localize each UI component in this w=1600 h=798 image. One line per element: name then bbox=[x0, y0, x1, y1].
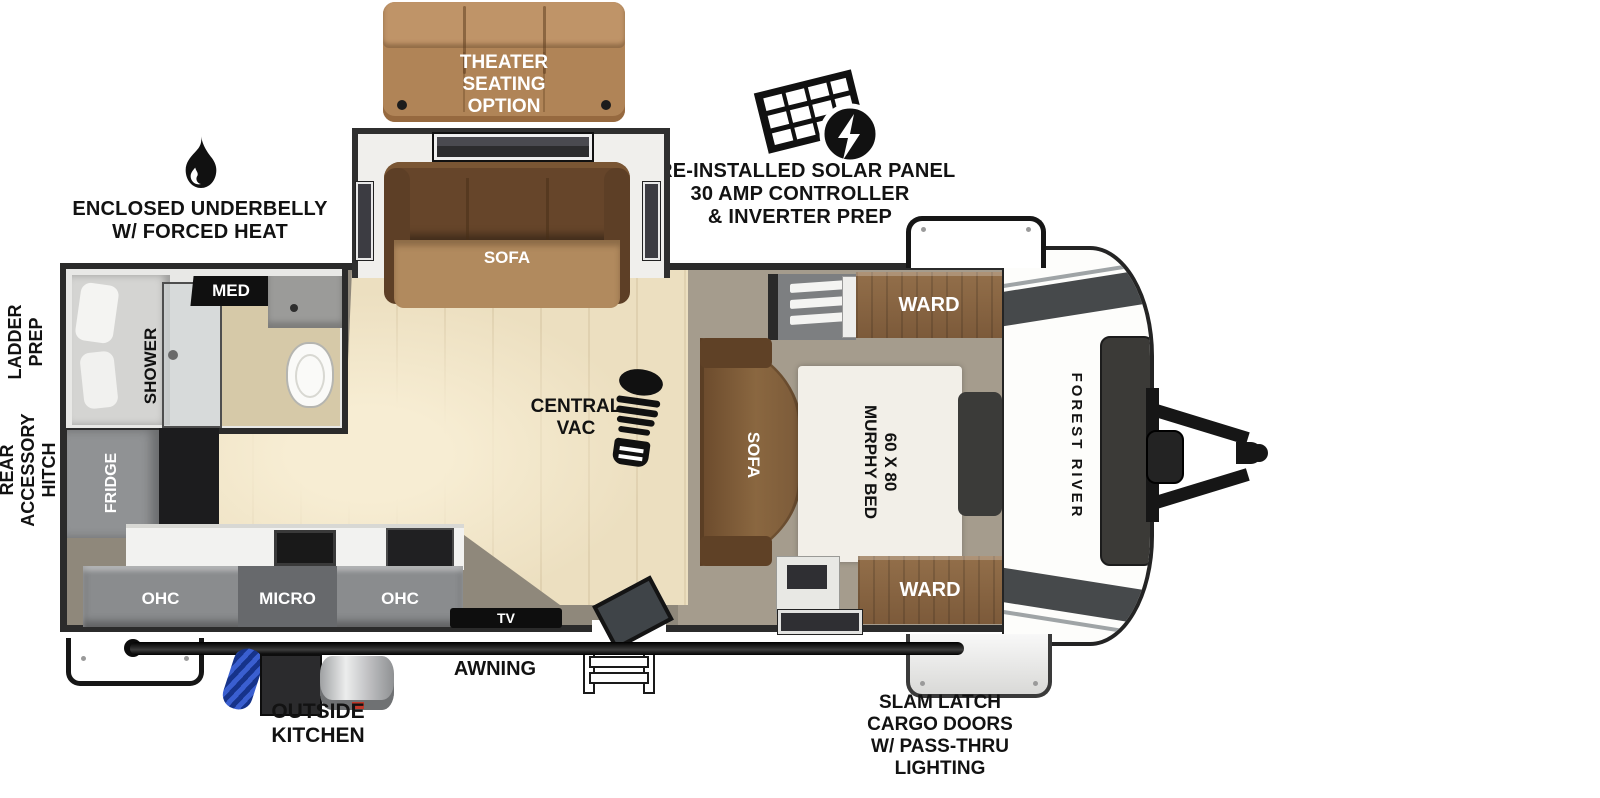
entry-step bbox=[583, 652, 655, 690]
hitch-ball bbox=[1250, 444, 1268, 462]
sofa-arm bbox=[700, 536, 772, 566]
dresser-slat bbox=[790, 296, 848, 309]
step-rung bbox=[589, 672, 649, 684]
screw bbox=[81, 656, 86, 661]
tv-label: TV bbox=[450, 610, 562, 626]
bedroom-window bbox=[778, 610, 862, 634]
solar-panel-icon bbox=[742, 62, 892, 166]
sofa-backrest bbox=[384, 162, 630, 242]
rear-accessory-hitch-label: REAR ACCESSORY HITCH bbox=[0, 394, 63, 546]
dresser-slat bbox=[790, 312, 848, 325]
front-cap: FOREST RIVER bbox=[1002, 246, 1154, 646]
flame-icon bbox=[178, 134, 224, 196]
ward-bottom-label: WARD bbox=[858, 579, 1002, 602]
kitchen-sink bbox=[386, 528, 454, 570]
screw bbox=[920, 681, 925, 686]
outside-kitchen-label: OUTSIDE KITCHEN bbox=[238, 700, 398, 749]
theater-seating-couch: THEATER SEATING OPTION bbox=[383, 2, 625, 122]
cooktop bbox=[274, 530, 336, 566]
theater-seating-label: THEATER SEATING OPTION bbox=[383, 52, 625, 118]
slide-sofa-label: SOFA bbox=[384, 248, 630, 268]
screw bbox=[184, 656, 189, 661]
slideout-window bbox=[432, 132, 594, 162]
toilet bbox=[286, 342, 334, 408]
brand-label: FOREST RIVER bbox=[1067, 326, 1085, 566]
shower-door-knob bbox=[168, 350, 178, 360]
step-rung bbox=[589, 656, 649, 668]
floorplan-canvas: THEATER SEATING OPTION PRE-INSTALLED SOL… bbox=[0, 0, 1600, 798]
micro-label: MICRO bbox=[238, 589, 337, 609]
shower-label: SHOWER bbox=[141, 306, 163, 426]
med-cabinet-label: MED bbox=[192, 281, 270, 301]
underbelly-callout-label: ENCLOSED UNDERBELLY W/ FORCED HEAT bbox=[40, 198, 360, 244]
ladder-prep-label: LADDER PREP bbox=[5, 284, 49, 400]
dresser-slat bbox=[790, 280, 848, 293]
awning-label: AWNING bbox=[430, 658, 560, 681]
screw bbox=[921, 227, 926, 232]
bathroom-vanity bbox=[268, 276, 342, 328]
cargo-doors-label: SLAM LATCH CARGO DOORS W/ PASS-THRU LIGH… bbox=[840, 692, 1040, 780]
cap-stripe-bottom bbox=[1002, 567, 1154, 628]
screw bbox=[1033, 681, 1038, 686]
shower-pan bbox=[79, 350, 119, 409]
murphy-bed-label: 60 X 80 MURPHY BED bbox=[860, 372, 900, 552]
bedroom-cabinet bbox=[776, 556, 840, 614]
tongue-jack bbox=[1146, 430, 1184, 484]
slideout-sofa: SOFA bbox=[384, 162, 630, 308]
toilet-seat bbox=[295, 354, 325, 398]
ohc-left-label: OHC bbox=[83, 589, 238, 609]
bathroom-faucet bbox=[290, 304, 298, 312]
couch-backrest bbox=[383, 2, 625, 48]
slideout-window-left bbox=[356, 182, 373, 260]
bed-sofa-label: SOFA bbox=[741, 405, 763, 505]
cargo-door-front-top bbox=[906, 216, 1046, 268]
sofa-arm bbox=[700, 338, 772, 368]
screw bbox=[1026, 227, 1031, 232]
cabinet-panel bbox=[787, 565, 827, 589]
bed-headboard bbox=[958, 392, 1002, 516]
fridge-label: FRIDGE bbox=[103, 446, 123, 520]
shower-pan bbox=[74, 282, 120, 345]
ohc-right-label: OHC bbox=[337, 589, 463, 609]
slideout-window-right bbox=[643, 182, 660, 260]
ward-top-label: WARD bbox=[856, 294, 1002, 317]
